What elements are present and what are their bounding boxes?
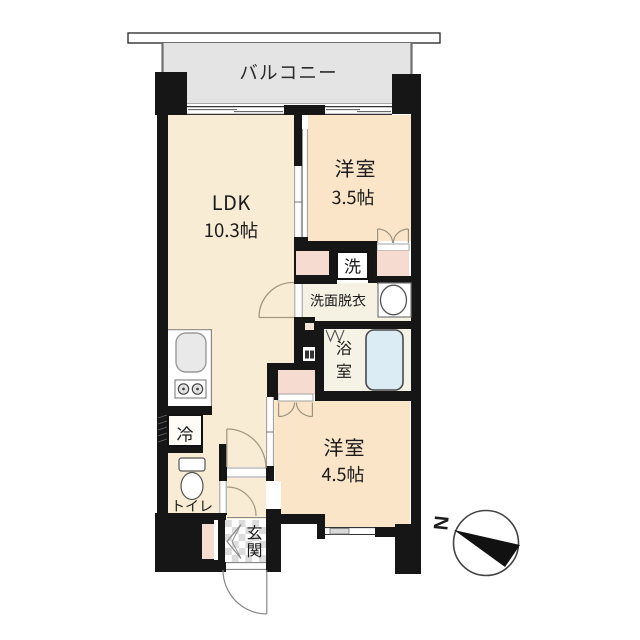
svg-text:N: N [430, 515, 453, 532]
